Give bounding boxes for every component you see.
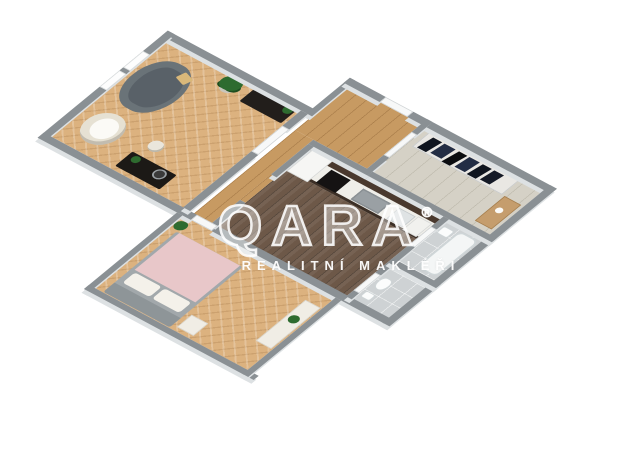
floorplan-3d-render: QARA® REALITNÍ MAKLÉŘI	[0, 0, 624, 468]
floorplan	[0, 0, 557, 403]
